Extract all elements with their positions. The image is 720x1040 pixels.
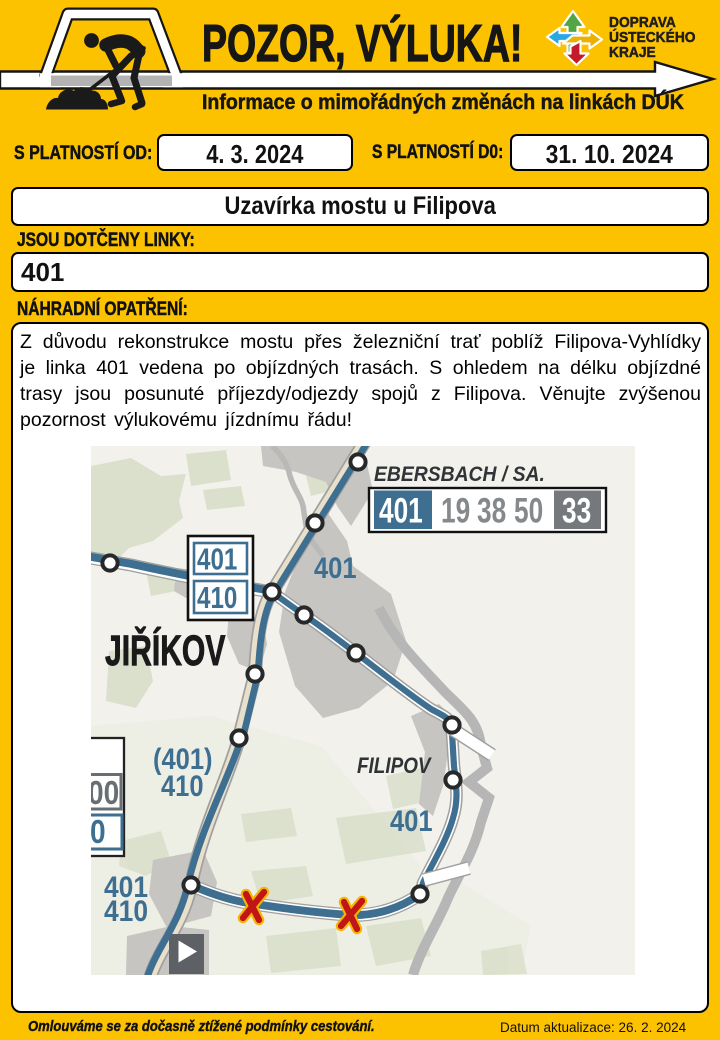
svg-text:50: 50 <box>514 491 543 531</box>
svg-text:410: 410 <box>197 580 237 615</box>
svg-text:33: 33 <box>562 491 591 531</box>
svg-text:FILIPOV: FILIPOV <box>357 754 433 779</box>
svg-text:00: 00 <box>91 775 119 812</box>
svg-text:410: 410 <box>104 893 148 927</box>
svg-text:19: 19 <box>441 491 470 531</box>
svg-text:401: 401 <box>314 551 357 584</box>
svg-text:401: 401 <box>390 804 433 837</box>
svg-text:38: 38 <box>477 491 506 531</box>
svg-text:401: 401 <box>197 542 237 577</box>
svg-text:JIŘÍKOV: JIŘÍKOV <box>105 626 226 675</box>
svg-text:410: 410 <box>161 769 204 802</box>
svg-text:0: 0 <box>91 814 106 851</box>
svg-text:EBERSBACH / SA.: EBERSBACH / SA. <box>374 462 545 486</box>
svg-text:401: 401 <box>379 491 423 531</box>
